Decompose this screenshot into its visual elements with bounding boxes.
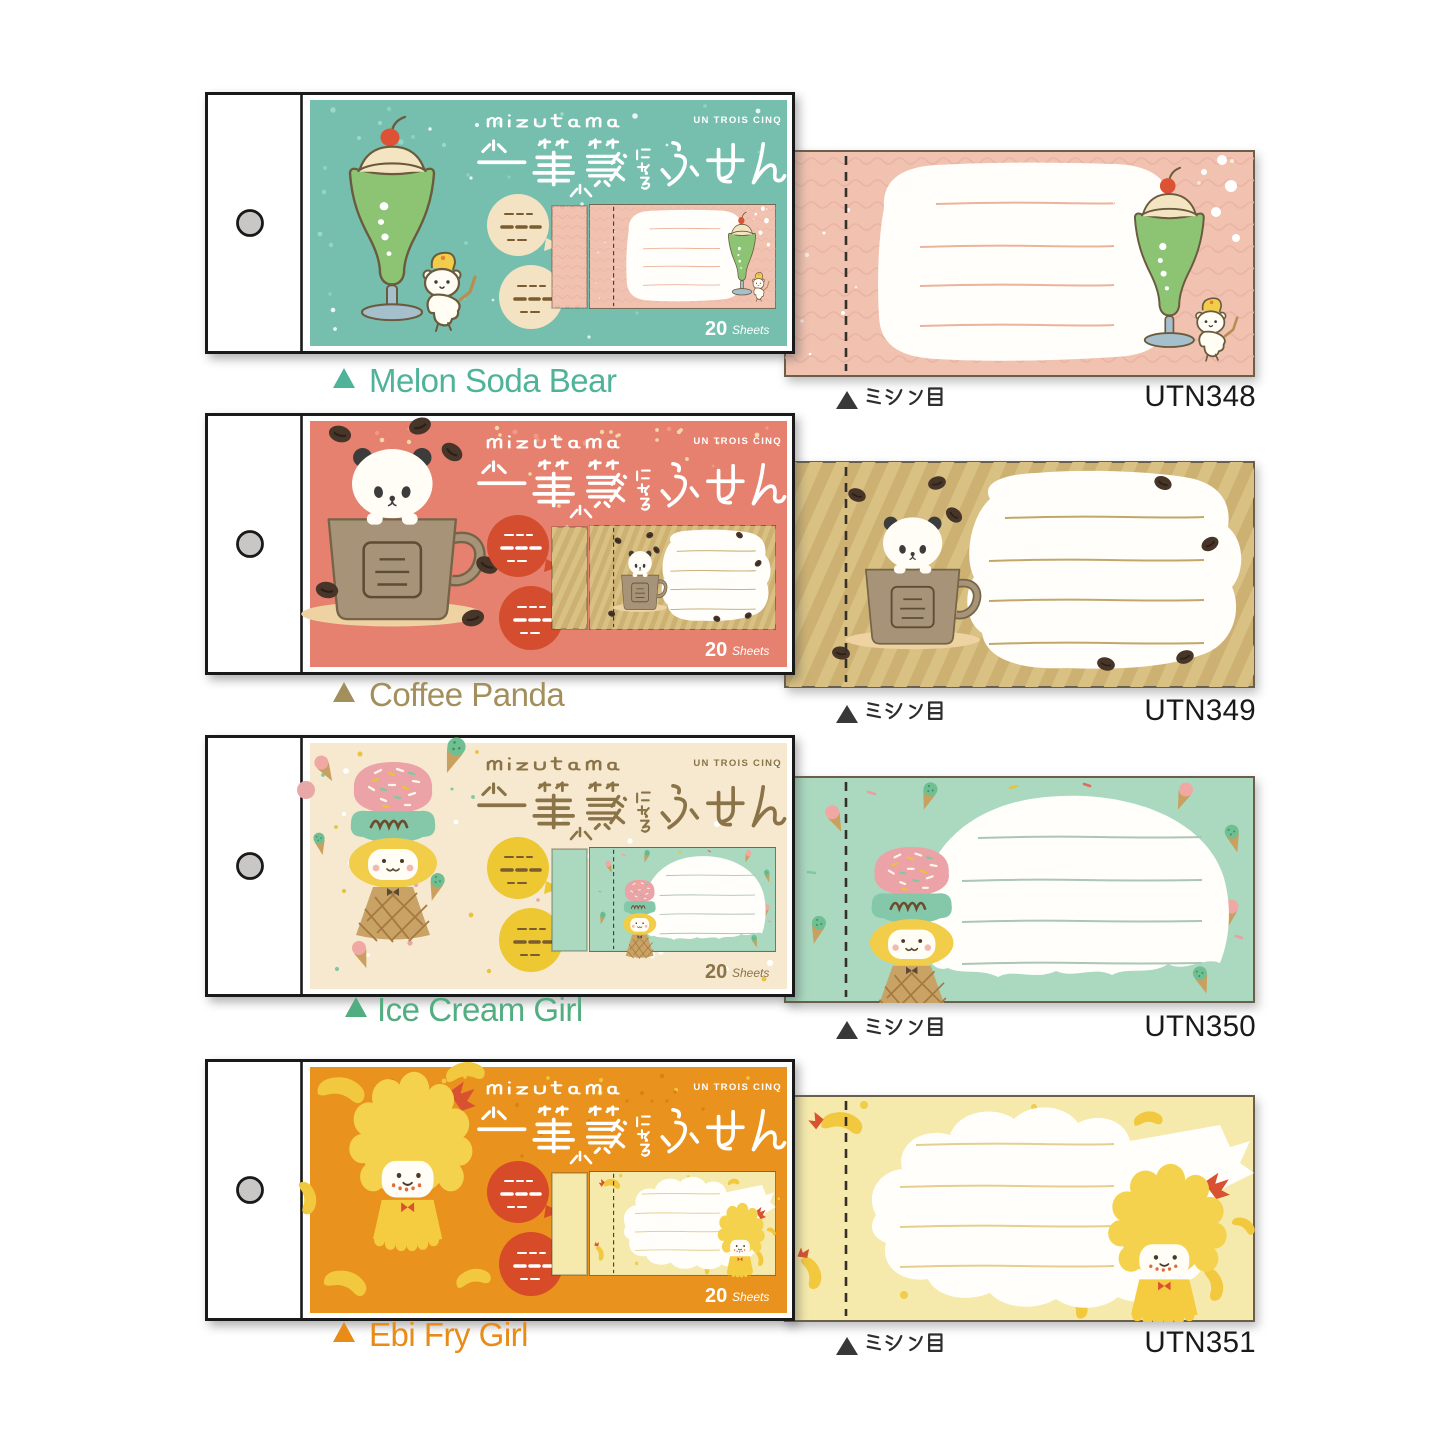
svg-text:UN TROIS CINQ: UN TROIS CINQ <box>693 1082 782 1093</box>
svg-text:Sheets: Sheets <box>732 1290 769 1304</box>
svg-text:Sheets: Sheets <box>732 644 769 658</box>
svg-text:20: 20 <box>705 639 727 661</box>
svg-text:20: 20 <box>705 961 727 983</box>
svg-text:Sheets: Sheets <box>732 966 769 980</box>
svg-text:UN TROIS CINQ: UN TROIS CINQ <box>693 115 782 126</box>
svg-text:20: 20 <box>705 1285 727 1307</box>
svg-text:Sheets: Sheets <box>732 323 769 337</box>
svg-text:20: 20 <box>705 318 727 340</box>
svg-text:UN TROIS CINQ: UN TROIS CINQ <box>693 758 782 769</box>
svg-text:UN TROIS CINQ: UN TROIS CINQ <box>693 436 782 447</box>
